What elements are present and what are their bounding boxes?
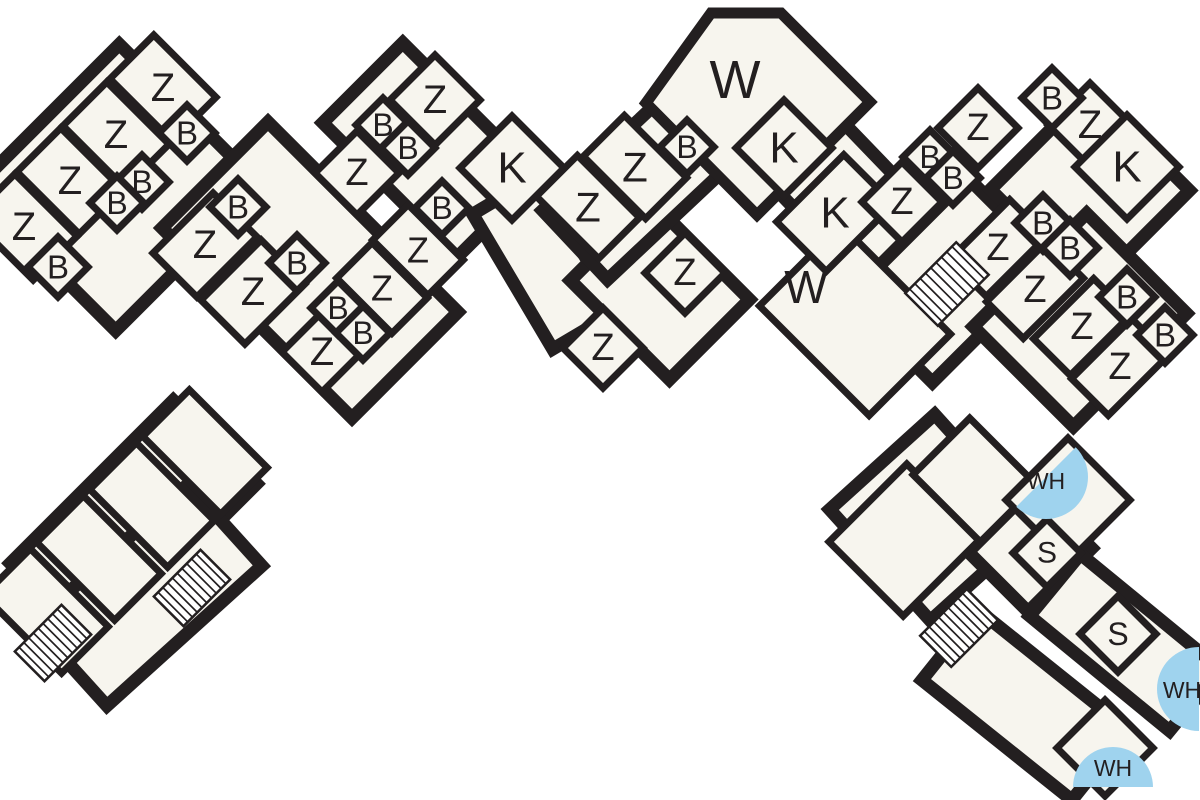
room-label-B: B — [942, 160, 963, 196]
room-label-K: K — [769, 124, 798, 173]
room-label-S: S — [1107, 616, 1128, 652]
room-label-WH: WH — [1163, 677, 1200, 703]
room-label-Z: Z — [345, 152, 368, 194]
room-label-B: B — [286, 245, 308, 282]
room-label-B: B — [131, 164, 152, 200]
room-label-W: W — [784, 261, 828, 313]
room-label-Z: Z — [407, 230, 429, 271]
room-label-B: B — [919, 139, 940, 175]
room-label-Z: Z — [673, 252, 696, 294]
room-label-Z: Z — [986, 227, 1009, 269]
room-label-B: B — [327, 290, 348, 326]
room-label-K: K — [497, 144, 526, 193]
room-label-Z: Z — [1108, 346, 1131, 388]
room-label-Z: Z — [423, 78, 447, 122]
room-label-B: B — [106, 185, 127, 221]
room-label-B: B — [372, 107, 393, 143]
room-label-B: B — [352, 315, 373, 351]
room-label-B: B — [397, 130, 418, 166]
room-label-B: B — [47, 249, 69, 286]
room-label-Z: Z — [966, 107, 989, 149]
room-label-B: B — [1032, 205, 1054, 242]
room-label-B: B — [1059, 230, 1081, 267]
room-label-Z: Z — [58, 159, 82, 203]
room-label-B: B — [1154, 317, 1176, 354]
room-label-Z: Z — [193, 223, 217, 267]
room-label-B: B — [227, 189, 249, 226]
room-label-B: B — [676, 129, 697, 165]
room-label-Z: Z — [12, 205, 36, 249]
room-label-K: K — [820, 189, 849, 238]
room-label-Z: Z — [151, 66, 175, 110]
room-label-Z: Z — [310, 330, 334, 374]
room-label-WH: WH — [1094, 755, 1132, 781]
room-label-Z: Z — [241, 270, 265, 314]
floor-plan-page: ZZZZZZZZZZZZZZZZZZZZZZBBBBBBBBBBBBBBBBBB… — [0, 0, 1200, 800]
room-label-Z: Z — [1070, 306, 1093, 348]
room-label-Z: Z — [591, 327, 614, 369]
room-label-Z: Z — [371, 268, 393, 309]
room-label-Z: Z — [575, 184, 601, 231]
room-label-Z: Z — [104, 113, 128, 157]
room-label-B: B — [1116, 279, 1138, 316]
room-label-B: B — [431, 190, 452, 226]
room-label-S: S — [1037, 537, 1057, 570]
room-label-W: W — [710, 50, 761, 110]
room-label-Z: Z — [1078, 103, 1102, 147]
room-label-Z: Z — [622, 144, 648, 191]
room-label-B: B — [176, 115, 198, 152]
room-label-B: B — [1041, 80, 1063, 117]
room-label-Z: Z — [1023, 269, 1046, 311]
room-label-K: K — [1112, 143, 1141, 192]
room-label-WH: WH — [1027, 468, 1065, 494]
room-label-Z: Z — [890, 181, 913, 223]
floor-plan-svg: ZZZZZZZZZZZZZZZZZZZZZZBBBBBBBBBBBBBBBBBB… — [0, 0, 1200, 800]
